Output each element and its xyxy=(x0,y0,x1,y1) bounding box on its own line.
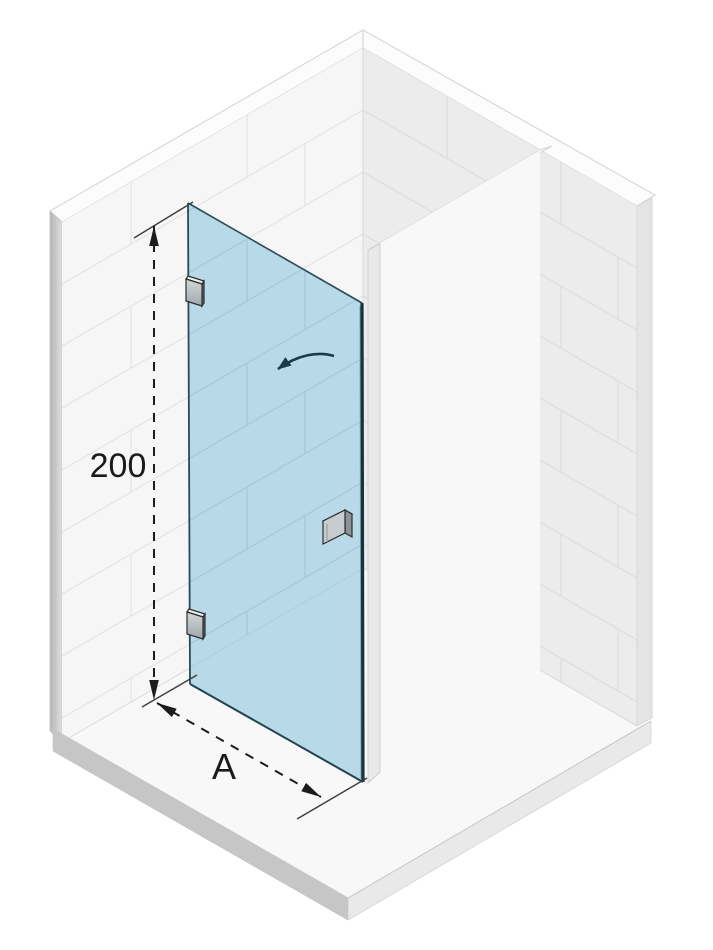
height-dimension-label: 200 xyxy=(90,447,147,485)
hinge-bottom-icon xyxy=(187,609,205,639)
diagram-page: 200 A xyxy=(0,0,713,950)
right-wall-end-face xyxy=(637,198,652,726)
partition-face xyxy=(368,150,540,783)
shower-door-diagram: 200 A xyxy=(0,0,713,950)
width-dimension-label: A xyxy=(212,746,236,787)
glass-panel xyxy=(188,203,363,782)
partition-front-edge xyxy=(368,244,380,783)
glass-right-edge xyxy=(362,303,363,782)
left-wall-end-face xyxy=(50,211,62,742)
hinge-top-icon xyxy=(186,276,204,306)
